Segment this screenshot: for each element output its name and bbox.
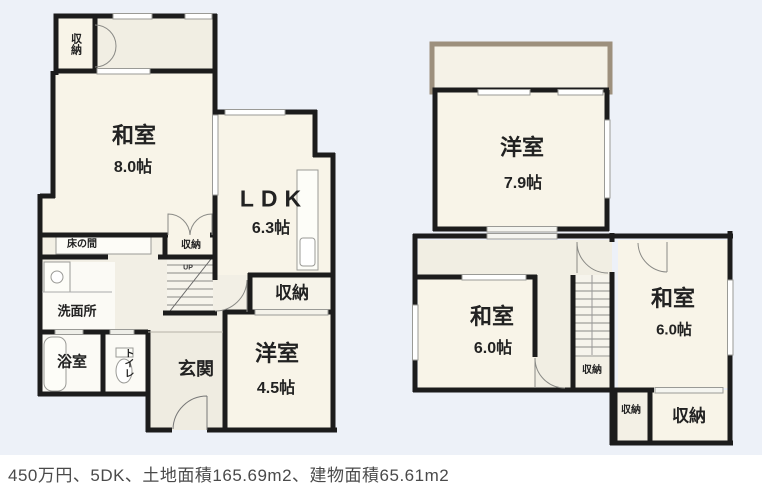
- washitsu-right-2f-name: 和室: [651, 288, 695, 310]
- yokushitsu-label: 浴室: [57, 355, 87, 370]
- washitsu-1f-name: 和室: [112, 125, 156, 147]
- yoshitsu-2f-size: 7.9帖: [504, 176, 542, 192]
- room-washitsu-1f: [40, 71, 215, 235]
- senmenjo-label: 洗面所: [57, 305, 96, 318]
- veranda-corridor: [95, 16, 215, 71]
- floor-plan-screenshot: 収納 和室 8.0帖 LDK 6.3帖 床の間 収納 UP 収納 洋室 4.5帖…: [0, 0, 762, 493]
- washitsu-left-2f-size: 6.0帖: [474, 341, 512, 357]
- listing-summary: 450万円、5DK、土地面積165.69m2、建物面積65.61m2: [8, 461, 449, 486]
- closet-stairs-1f-label: 収納: [181, 241, 201, 251]
- yoshitsu-1f-size: 4.5帖: [257, 381, 295, 397]
- washitsu-1f-size: 8.0帖: [114, 160, 152, 176]
- room-washitsu-right-2f: [618, 240, 730, 388]
- yoshitsu-1f-name: 洋室: [255, 343, 299, 365]
- yoshitsu-2f-name: 洋室: [500, 137, 544, 159]
- ldk-size: 6.3帖: [252, 221, 290, 237]
- room-yoshitsu-1f: [225, 312, 333, 430]
- tokonoma-label: 床の間: [67, 240, 97, 250]
- room-washitsu-left-2f: [418, 275, 535, 388]
- washitsu-left-2f-name: 和室: [470, 306, 514, 328]
- toilet-label: トイレ: [122, 348, 132, 378]
- closet-small-2f-label: 収納: [621, 406, 641, 416]
- floor-plan-canvas: [0, 0, 762, 493]
- stairs-up-label: UP: [183, 265, 193, 272]
- closet-large-2f-label: 収納: [672, 408, 706, 425]
- balcony: [432, 44, 610, 92]
- hall-2f: [418, 240, 612, 275]
- floor2-plan: [413, 44, 734, 445]
- washbasin-bowl: [51, 271, 63, 283]
- kitchen-sink: [300, 238, 315, 266]
- closet-stairs-2f-label: 収納: [582, 366, 602, 376]
- genkan-area: [148, 332, 225, 430]
- washitsu-right-2f-size: 6.0帖: [656, 323, 692, 338]
- closet-ldk-label: 収納: [275, 285, 309, 302]
- room-yoshitsu-2f: [435, 92, 607, 229]
- closet-small-area-2f: [612, 390, 650, 443]
- ldk-name: LDK: [240, 188, 308, 211]
- genkan-label: 玄関: [178, 360, 214, 378]
- closet-top-label: 収納: [70, 33, 81, 55]
- corridor-2f: [535, 275, 573, 388]
